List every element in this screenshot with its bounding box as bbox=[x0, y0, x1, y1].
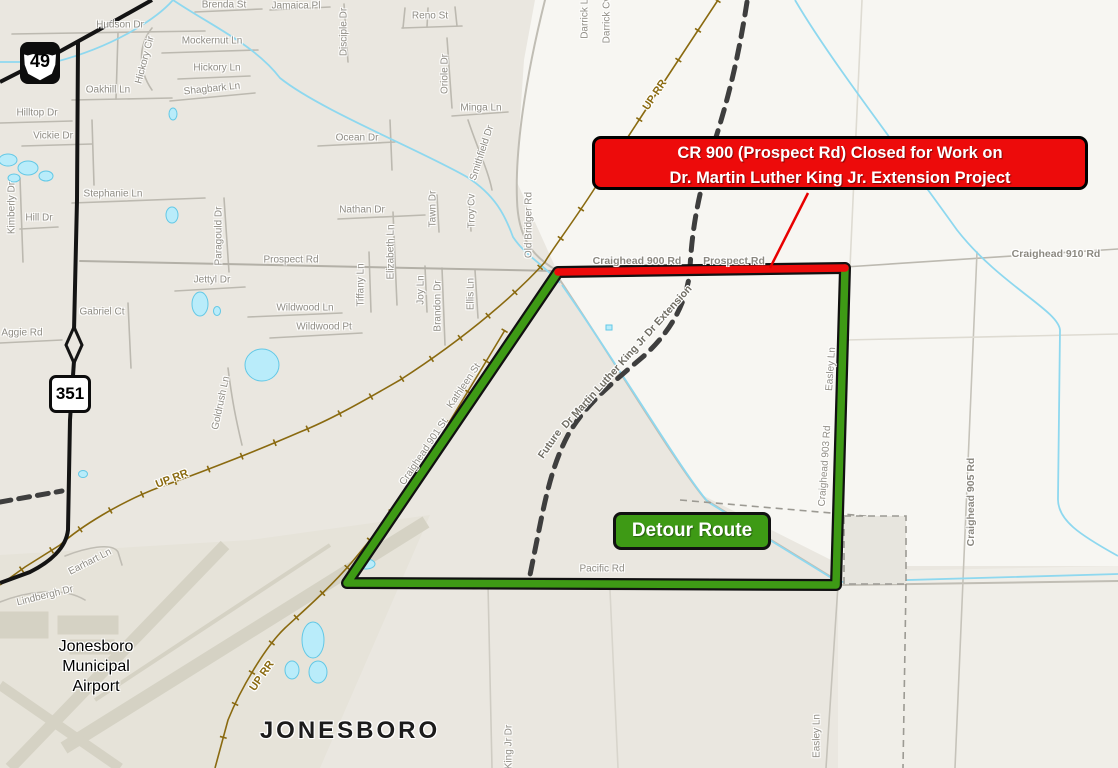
us-49-shield: 49 bbox=[20, 42, 60, 84]
roundabout bbox=[66, 327, 82, 363]
future-road-stub bbox=[0, 491, 62, 502]
ar-351-shield-number: 351 bbox=[56, 384, 84, 403]
ar-351-shield: 351 bbox=[49, 375, 91, 413]
detour-route-label: Detour Route bbox=[613, 512, 771, 550]
closure-banner-line2: Dr. Martin Luther King Jr. Extension Pro… bbox=[595, 166, 1085, 191]
us-49-shield-number: 49 bbox=[20, 51, 60, 72]
closed-road-segment bbox=[558, 268, 845, 272]
map-canvas[interactable]: JONESBOROJonesboroMunicipalAirportUP RRU… bbox=[0, 0, 1118, 768]
closure-banner-line1: CR 900 (Prospect Rd) Closed for Work on bbox=[595, 141, 1085, 166]
detour-route-label-text: Detour Route bbox=[632, 520, 752, 541]
map-base-layer bbox=[0, 0, 1118, 768]
closure-banner: CR 900 (Prospect Rd) Closed for Work on … bbox=[592, 136, 1088, 190]
